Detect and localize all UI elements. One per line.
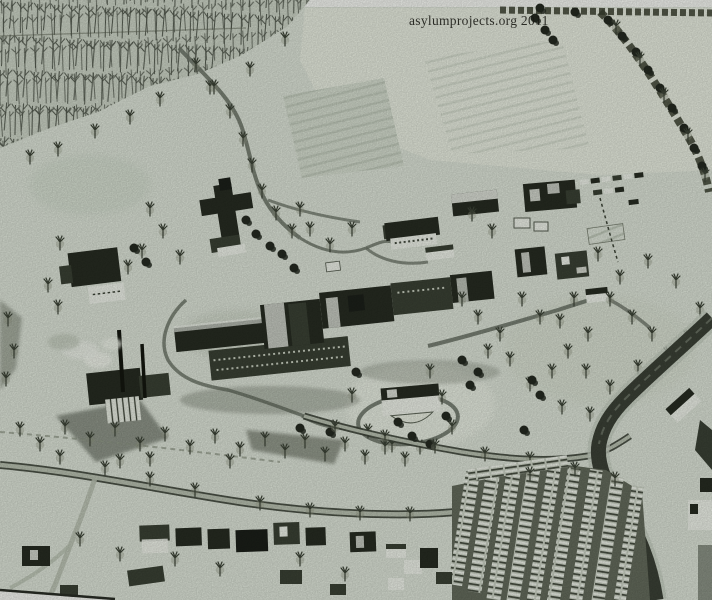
film-grain-overlay [0, 0, 712, 600]
watermark-text: asylumprojects.org 2011 [409, 13, 549, 28]
aerial-photo-canvas: asylumprojects.org 2011 [0, 0, 712, 600]
aerial-photograph: asylumprojects.org 2011 [0, 0, 712, 600]
